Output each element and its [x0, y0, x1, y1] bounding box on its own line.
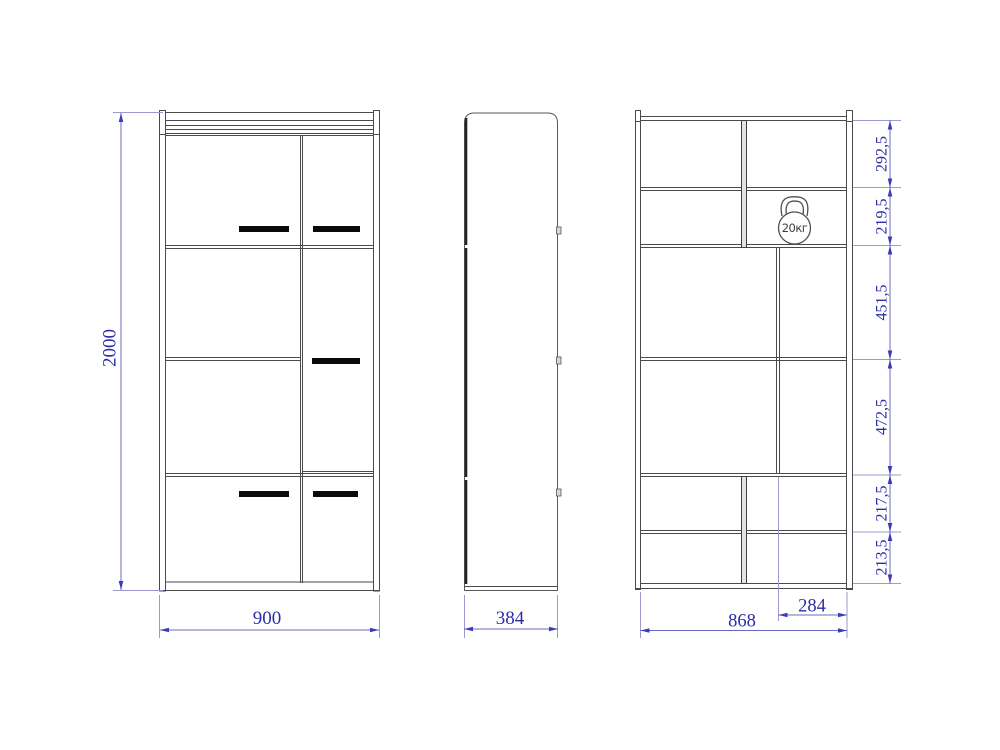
front-structure-lines: [160, 113, 380, 591]
front-right-side-panel: [374, 111, 380, 592]
front-left-side-panel: [160, 111, 166, 592]
front-view: [160, 111, 380, 592]
dim-label-height: 2000: [100, 329, 121, 367]
dim-label-segment-2: 219,5: [874, 199, 891, 235]
dimension-annotations: 2000 900 384 868 284 292,5 219,5 451,5 4…: [100, 113, 902, 639]
furniture-technical-drawing: 20кг 2000 900 384 868 284 292,5 219,5 45…: [0, 0, 1000, 750]
door-handle: [312, 358, 360, 364]
dim-label-inner-width: 868: [728, 612, 756, 632]
hinge-pin: [557, 357, 562, 364]
max-load-label: 20кг: [782, 221, 808, 235]
side-view: [465, 113, 562, 591]
dim-label-segment-6: 213,5: [874, 540, 891, 576]
section-right-side-panel: [847, 111, 853, 590]
side-outline: [465, 113, 558, 591]
dim-label-segment-1: 292,5: [874, 136, 891, 172]
dim-label-front-width: 900: [253, 608, 282, 629]
hinge-pin: [557, 227, 562, 234]
door-handle: [313, 491, 358, 497]
door-handle: [239, 491, 289, 497]
kettlebell-icon: 20кг: [779, 197, 811, 244]
drawing-canvas: 20кг 2000 900 384 868 284 292,5 219,5 45…: [0, 0, 1000, 750]
hinge-pin: [557, 489, 562, 496]
door-handle: [313, 226, 360, 232]
section-left-side-panel: [636, 111, 641, 590]
door-handle: [239, 226, 289, 232]
dim-label-segment-3: 451,5: [874, 285, 891, 321]
section-view: 20кг: [636, 111, 853, 590]
center-divider-bottom: [742, 477, 747, 584]
extension-lines: [113, 113, 901, 639]
center-divider-top: [742, 121, 747, 248]
dim-label-segment-4: 472,5: [874, 399, 891, 435]
dim-label-compartment-width: 284: [798, 597, 826, 617]
dim-label-depth: 384: [496, 608, 525, 629]
dim-label-segment-5: 217,5: [874, 486, 891, 522]
